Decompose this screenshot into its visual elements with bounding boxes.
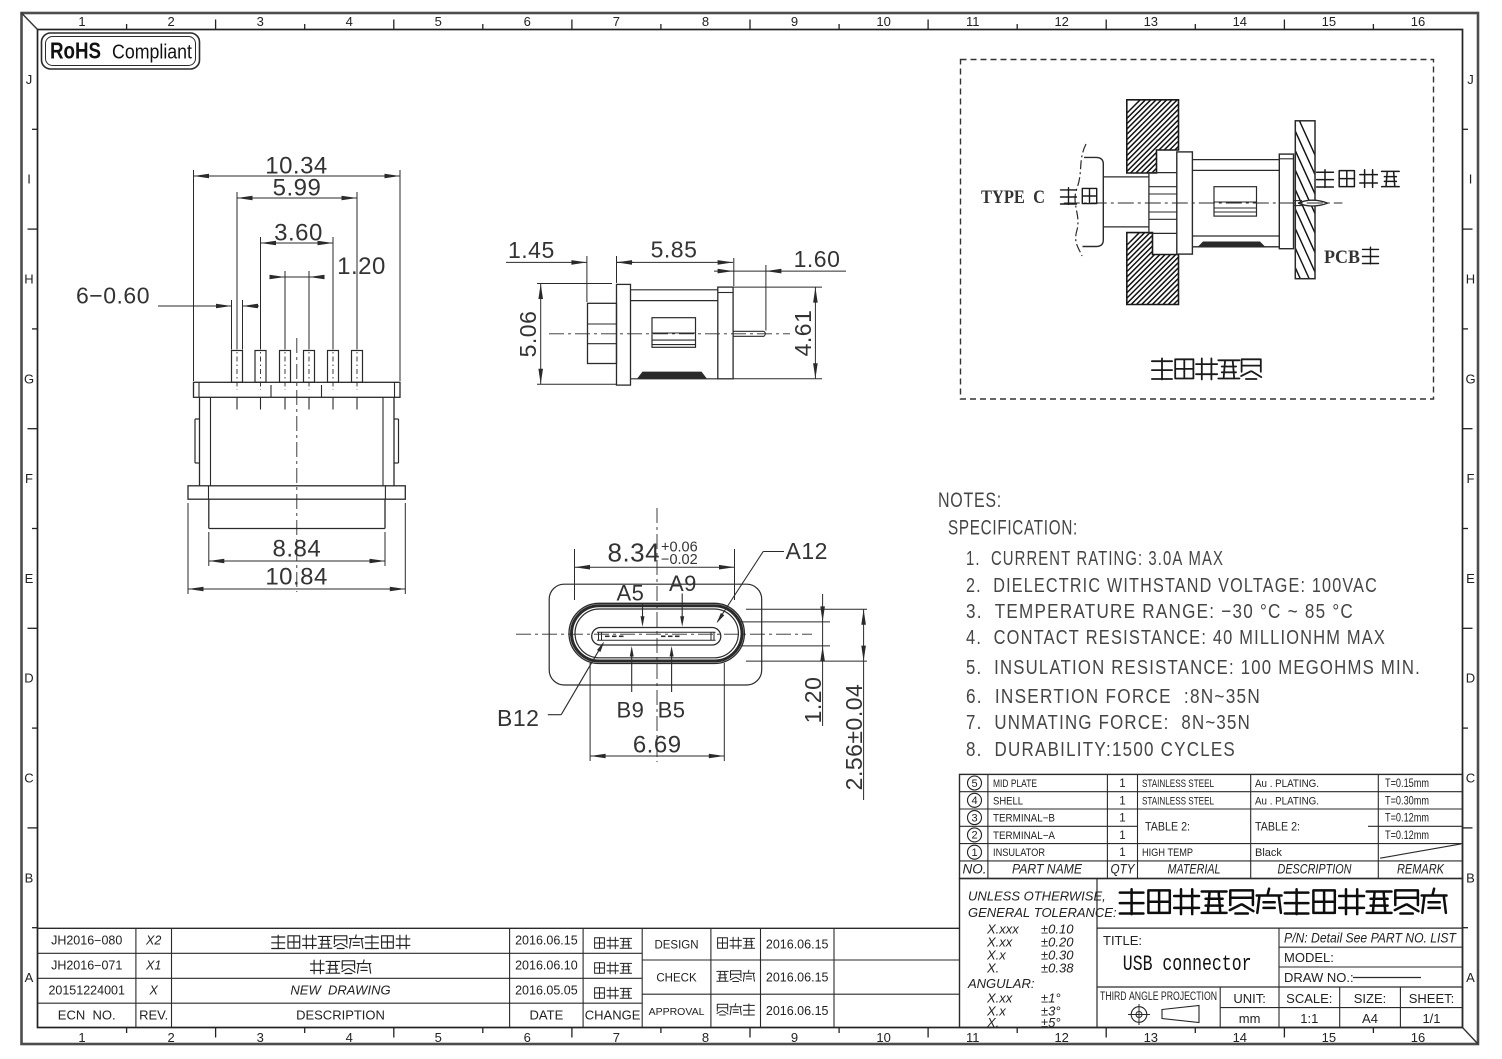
svg-text:MID PLATE: MID PLATE — [993, 778, 1037, 790]
svg-text:5.85: 5.85 — [651, 237, 698, 263]
svg-text:A: A — [1466, 970, 1475, 985]
svg-text:NO.: NO. — [962, 862, 986, 877]
svg-text:8. DURABILITY:1500 CYCLES: 8. DURABILITY:1500 CYCLES — [966, 738, 1236, 761]
svg-text:NOTES:: NOTES: — [938, 489, 1002, 512]
svg-text:mm: mm — [1239, 1011, 1261, 1026]
svg-text:TERMINAL−B: TERMINAL−B — [993, 813, 1055, 825]
svg-text:G: G — [1465, 371, 1475, 386]
svg-text:12: 12 — [1054, 14, 1068, 29]
svg-text:REV.: REV. — [139, 1008, 168, 1023]
svg-text:F: F — [1467, 471, 1475, 486]
svg-text:JH2016−071: JH2016−071 — [51, 959, 122, 973]
svg-text:Au . PLATING.: Au . PLATING. — [1255, 778, 1319, 790]
svg-text:A: A — [25, 970, 34, 985]
svg-text:X2: X2 — [145, 934, 161, 948]
svg-text:DESIGN: DESIGN — [654, 940, 698, 952]
svg-text:8: 8 — [702, 14, 709, 29]
svg-text:8.84: 8.84 — [273, 536, 322, 563]
svg-text:CHECK: CHECK — [656, 973, 697, 985]
svg-text:SCALE:: SCALE: — [1286, 991, 1332, 1006]
svg-text:±0.38: ±0.38 — [1041, 961, 1074, 976]
svg-text:H: H — [1466, 272, 1475, 287]
svg-text:ANGULAR:: ANGULAR: — [967, 976, 1035, 991]
svg-text:5. INSULATION RESISTANCE: 100: 5. INSULATION RESISTANCE: 100 MEGOHMS MI… — [966, 656, 1421, 679]
svg-text:−0.02: −0.02 — [661, 552, 698, 568]
svg-text:1.60: 1.60 — [794, 246, 841, 272]
svg-text:J: J — [26, 72, 33, 87]
svg-text:G: G — [24, 371, 34, 386]
svg-text:2016.05.05: 2016.05.05 — [515, 984, 578, 998]
svg-text:1. CURRENT RATING: 3.0A MAX: 1. CURRENT RATING: 3.0A MAX — [966, 547, 1224, 570]
svg-text:PART NAME: PART NAME — [1012, 862, 1083, 877]
svg-text:7: 7 — [613, 14, 620, 29]
svg-text:14: 14 — [1233, 1030, 1247, 1045]
svg-text:B12: B12 — [497, 705, 539, 731]
svg-text:3. TEMPERATURE RANGE: −30 °C: 3. TEMPERATURE RANGE: −30 °C ~ 85 °C — [966, 600, 1354, 623]
svg-text:1.20: 1.20 — [337, 253, 386, 280]
svg-text:B: B — [25, 870, 34, 885]
svg-text:6: 6 — [524, 14, 531, 29]
svg-text:A9: A9 — [669, 571, 697, 596]
svg-text:11: 11 — [966, 14, 980, 29]
svg-text:B9: B9 — [616, 698, 644, 723]
svg-text:1: 1 — [1119, 778, 1125, 790]
svg-text:2: 2 — [971, 830, 977, 842]
svg-text:APPROVAL: APPROVAL — [649, 1006, 705, 1018]
svg-text:TYPE C: TYPE C — [981, 187, 1045, 208]
svg-text:3.60: 3.60 — [274, 220, 323, 247]
svg-text:SPECIFICATION:: SPECIFICATION: — [948, 517, 1078, 540]
svg-text:20151224001: 20151224001 — [48, 984, 125, 998]
svg-text:GENERAL TOLERANCE:: GENERAL TOLERANCE: — [968, 905, 1117, 920]
svg-text:DATE: DATE — [530, 1008, 564, 1023]
svg-text:±5°: ±5° — [1041, 1015, 1061, 1030]
svg-text:TABLE 2:: TABLE 2: — [1145, 820, 1190, 834]
svg-text:B: B — [1466, 870, 1475, 885]
svg-text:NEW DRAWING: NEW DRAWING — [290, 983, 390, 998]
svg-text:Compliant: Compliant — [112, 41, 192, 64]
svg-text:USB connector: USB connector — [1123, 952, 1252, 977]
svg-text:2016.06.10: 2016.06.10 — [515, 959, 578, 973]
svg-text:H: H — [24, 272, 33, 287]
svg-text:1.20: 1.20 — [800, 677, 826, 724]
svg-text:2: 2 — [167, 1030, 174, 1045]
svg-text:X.: X. — [986, 961, 999, 976]
svg-text:T=0.30mm: T=0.30mm — [1385, 795, 1429, 807]
svg-text:TERMINAL−A: TERMINAL−A — [993, 830, 1056, 842]
svg-text:J: J — [1467, 72, 1474, 87]
svg-text:4: 4 — [346, 14, 353, 29]
svg-text:6. INSERTION FORCE :8N~35N: 6. INSERTION FORCE :8N~35N — [966, 685, 1261, 708]
svg-text:7: 7 — [613, 1030, 620, 1045]
svg-text:C: C — [1466, 771, 1475, 786]
svg-text:4. CONTACT RESISTANCE: 40 MIL: 4. CONTACT RESISTANCE: 40 MILLIONHM MAX — [966, 626, 1386, 649]
svg-text:6−0.60: 6−0.60 — [76, 283, 150, 309]
svg-text:5: 5 — [971, 778, 977, 790]
svg-text:13: 13 — [1144, 14, 1158, 29]
svg-text:1: 1 — [971, 847, 977, 859]
svg-text:RoHS: RoHS — [50, 38, 101, 64]
svg-text:3: 3 — [971, 812, 977, 824]
svg-text:6.69: 6.69 — [633, 732, 682, 759]
svg-text:HIGH TEMP: HIGH TEMP — [1142, 847, 1193, 859]
svg-text:1: 1 — [1119, 813, 1125, 825]
svg-text:8.34: 8.34 — [608, 538, 661, 568]
svg-text:16: 16 — [1411, 14, 1425, 29]
svg-text:16: 16 — [1411, 1030, 1425, 1045]
svg-text:1.45: 1.45 — [508, 237, 555, 263]
svg-text:6: 6 — [524, 1030, 531, 1045]
svg-text:15: 15 — [1322, 14, 1336, 29]
svg-text:4.61: 4.61 — [790, 310, 816, 357]
svg-text:QTY: QTY — [1111, 862, 1136, 877]
svg-text:1: 1 — [1119, 830, 1125, 842]
svg-text:MODEL:: MODEL: — [1284, 950, 1334, 965]
svg-text:2016.06.15: 2016.06.15 — [766, 1004, 829, 1018]
svg-text:D: D — [24, 671, 33, 686]
svg-text:PCB: PCB — [1324, 247, 1360, 268]
svg-text:X: X — [149, 984, 159, 998]
svg-text:UNLESS OTHERWISE,: UNLESS OTHERWISE, — [968, 889, 1106, 904]
svg-text:5: 5 — [435, 1030, 442, 1045]
svg-text:4: 4 — [346, 1030, 353, 1045]
svg-text:E: E — [1466, 571, 1475, 586]
svg-text:D: D — [1466, 671, 1475, 686]
svg-text:DESCRIPTION: DESCRIPTION — [1278, 862, 1352, 877]
svg-text:SHEET:: SHEET: — [1409, 991, 1455, 1006]
svg-text:9: 9 — [791, 1030, 798, 1045]
svg-text:SIZE:: SIZE: — [1354, 991, 1387, 1006]
svg-text:JH2016−080: JH2016−080 — [51, 934, 122, 948]
svg-text:TITLE:: TITLE: — [1103, 933, 1142, 948]
svg-text:X.: X. — [986, 1015, 999, 1030]
svg-text:14: 14 — [1233, 14, 1247, 29]
svg-text:F: F — [25, 471, 33, 486]
svg-text:2. DIELECTRIC WITHSTAND VOLTA: 2. DIELECTRIC WITHSTAND VOLTAGE: 100VAC — [966, 574, 1378, 597]
svg-text:10: 10 — [876, 14, 890, 29]
svg-text:T=0.12mm: T=0.12mm — [1385, 813, 1429, 825]
svg-text:MATERIAL: MATERIAL — [1168, 862, 1221, 877]
svg-text:X1: X1 — [145, 959, 161, 973]
svg-text:2016.06.15: 2016.06.15 — [766, 938, 829, 952]
svg-text:TABLE 2:: TABLE 2: — [1255, 820, 1300, 834]
svg-text:2.56±0.04: 2.56±0.04 — [841, 684, 867, 791]
svg-text:2016.06.15: 2016.06.15 — [766, 971, 829, 985]
svg-text:1/1: 1/1 — [1422, 1011, 1440, 1026]
svg-text:10: 10 — [876, 1030, 890, 1045]
svg-text:1: 1 — [78, 14, 85, 29]
svg-text:1: 1 — [78, 1030, 85, 1045]
svg-text:B5: B5 — [658, 698, 686, 723]
svg-text:REMARK: REMARK — [1397, 862, 1445, 877]
svg-text:A5: A5 — [616, 581, 644, 606]
svg-text:A4: A4 — [1362, 1011, 1378, 1026]
svg-text:ECN NO.: ECN NO. — [58, 1008, 116, 1023]
svg-text:Au . PLATING.: Au . PLATING. — [1255, 795, 1319, 807]
svg-text:11: 11 — [966, 1030, 980, 1045]
svg-text:THIRD ANGLE PROJECTION: THIRD ANGLE PROJECTION — [1100, 991, 1217, 1003]
svg-text:I: I — [27, 172, 31, 187]
svg-text:4: 4 — [971, 795, 977, 807]
svg-text:8: 8 — [702, 1030, 709, 1045]
svg-text:13: 13 — [1144, 1030, 1158, 1045]
svg-text:INSULATOR: INSULATOR — [993, 847, 1045, 859]
svg-text:3: 3 — [257, 14, 264, 29]
svg-text:UNIT:: UNIT: — [1233, 991, 1266, 1006]
svg-text:DRAW NO.:: DRAW NO.: — [1284, 970, 1354, 985]
svg-text:9: 9 — [791, 14, 798, 29]
svg-text:I: I — [1469, 172, 1473, 187]
svg-text:T=0.15mm: T=0.15mm — [1385, 778, 1429, 790]
svg-text:CHANGE: CHANGE — [585, 1008, 641, 1023]
svg-text:15: 15 — [1322, 1030, 1336, 1045]
svg-text:7. UNMATING FORCE: 8N~35N: 7. UNMATING FORCE: 8N~35N — [966, 711, 1251, 734]
svg-text:DESCRIPTION: DESCRIPTION — [296, 1008, 385, 1023]
svg-text:1: 1 — [1119, 795, 1125, 807]
svg-text:1: 1 — [1119, 847, 1125, 859]
svg-text:5: 5 — [435, 14, 442, 29]
svg-text:SHELL: SHELL — [993, 795, 1023, 807]
svg-text:P/N: Detail See PART NO. LIST: P/N: Detail See PART NO. LIST — [1284, 931, 1458, 946]
svg-text:2016.06.15: 2016.06.15 — [515, 934, 578, 948]
svg-text:T=0.12mm: T=0.12mm — [1385, 830, 1429, 842]
svg-text:2: 2 — [167, 14, 174, 29]
svg-text:5.06: 5.06 — [515, 311, 541, 358]
svg-text:10.84: 10.84 — [265, 564, 328, 591]
svg-text:3: 3 — [257, 1030, 264, 1045]
svg-text:STAINLESS STEEL: STAINLESS STEEL — [1142, 795, 1214, 807]
svg-text:12: 12 — [1054, 1030, 1068, 1045]
svg-text:C: C — [24, 771, 33, 786]
svg-text:STAINLESS STEEL: STAINLESS STEEL — [1142, 778, 1214, 790]
svg-text:E: E — [25, 571, 34, 586]
svg-text:Black: Black — [1255, 847, 1282, 859]
svg-text:A12: A12 — [786, 538, 828, 564]
svg-text:1:1: 1:1 — [1300, 1011, 1318, 1026]
svg-text:5.99: 5.99 — [273, 175, 322, 202]
